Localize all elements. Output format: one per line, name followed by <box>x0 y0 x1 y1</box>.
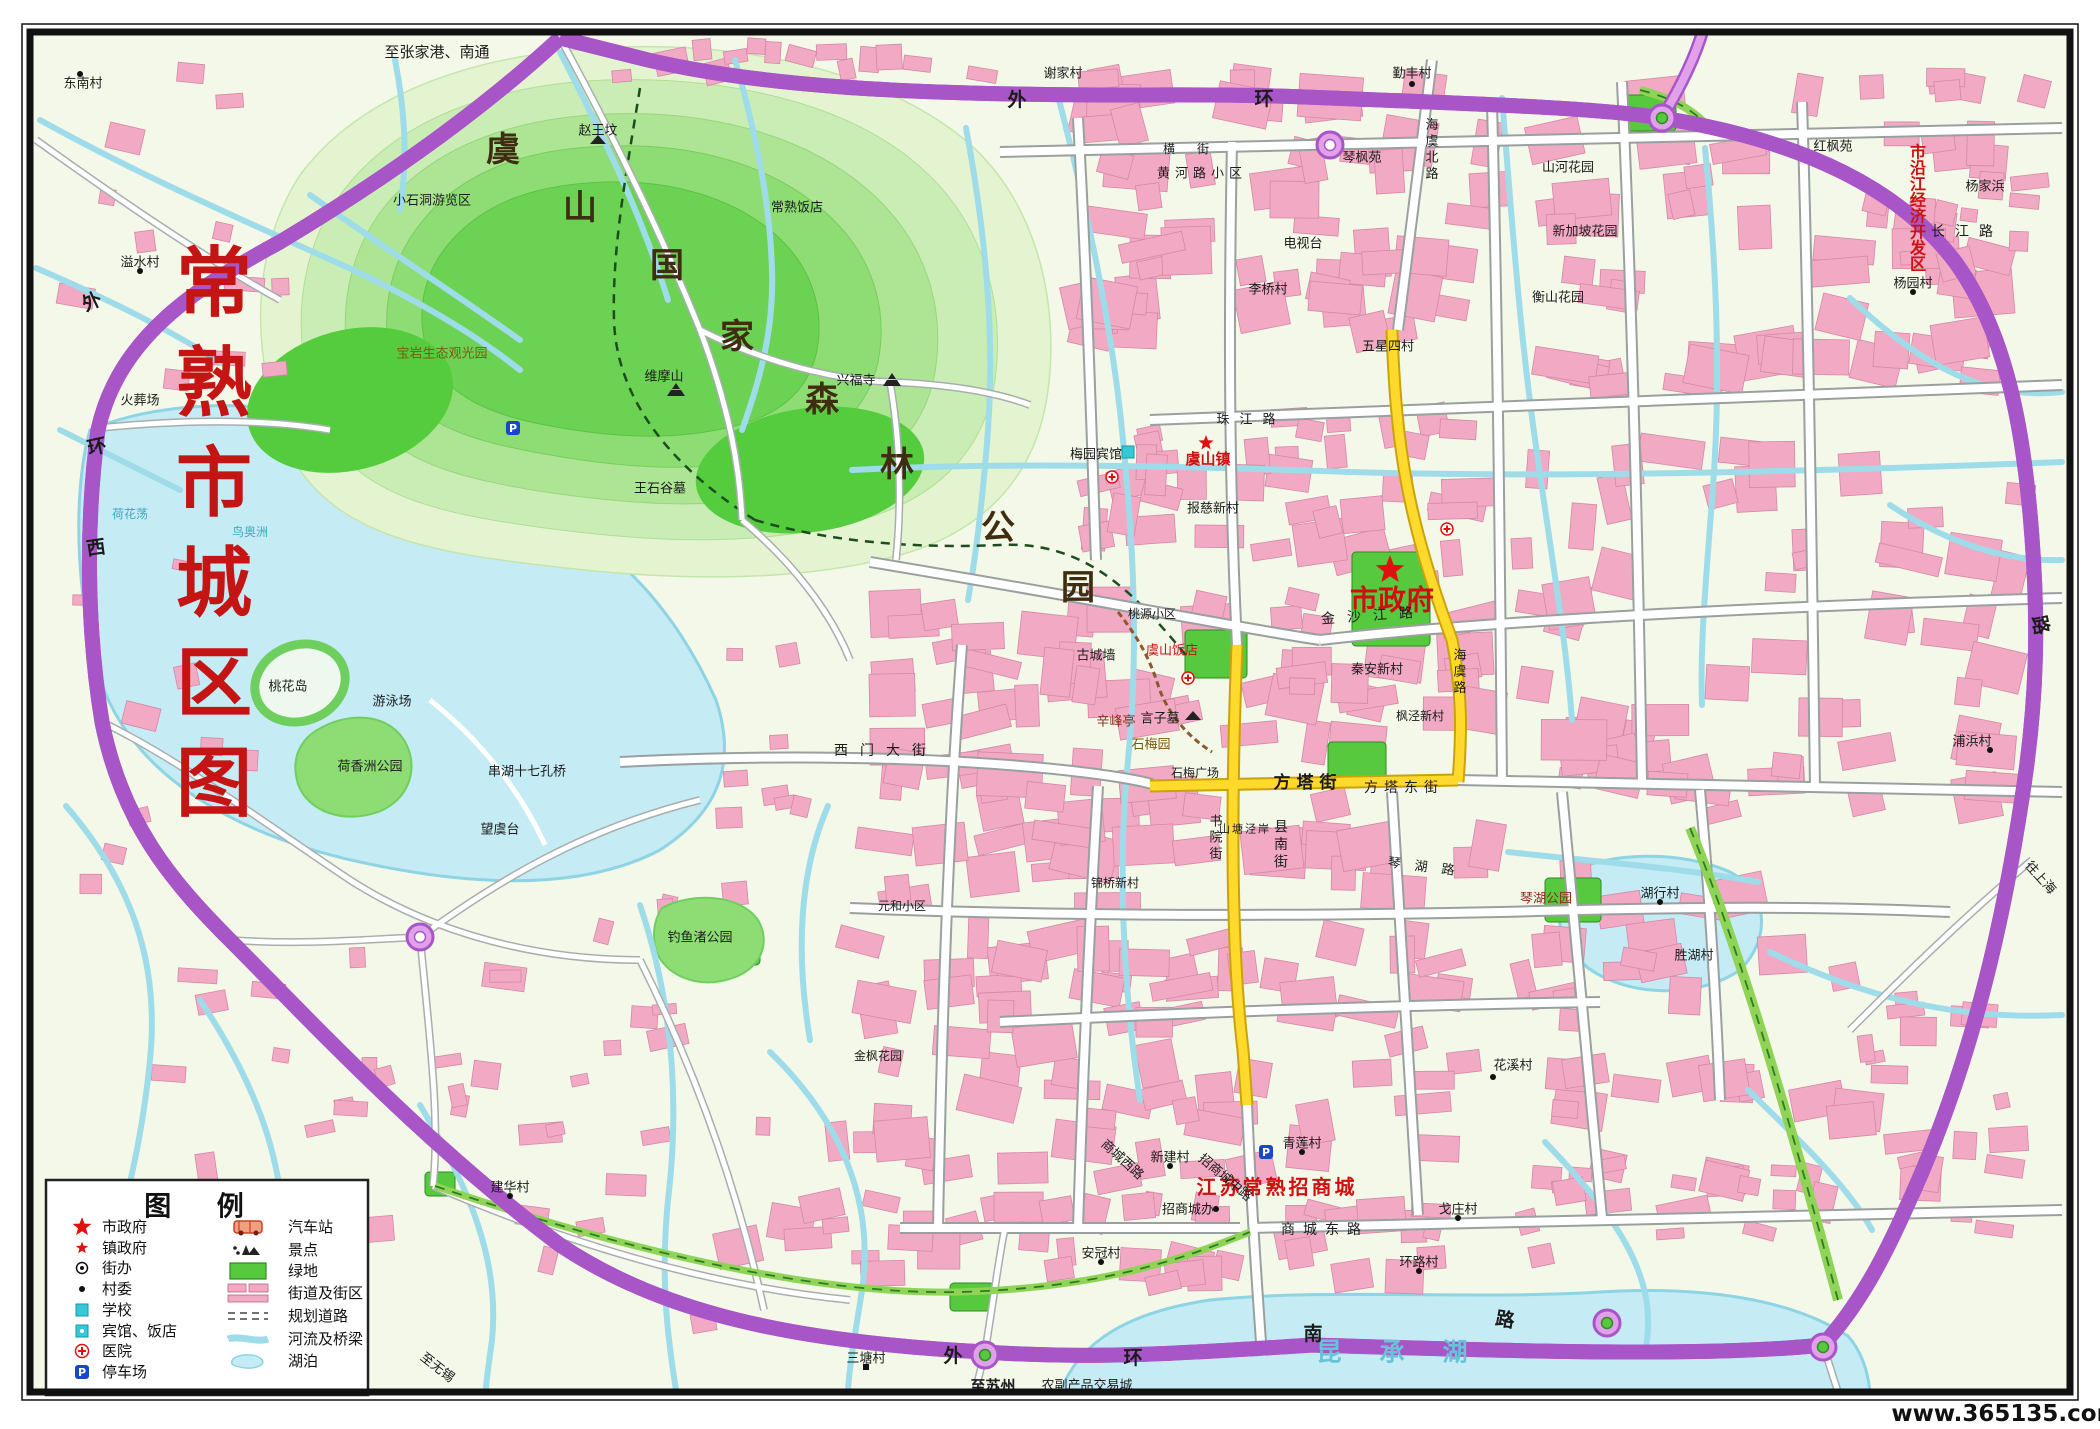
urban-block <box>1656 1228 1684 1240</box>
urban-block <box>1135 1039 1180 1089</box>
street-office-dot <box>80 1266 84 1270</box>
legend-label: 宾馆、饭店 <box>102 1322 177 1340</box>
map-label: 五星四村 <box>1362 340 1414 355</box>
map-label: 杨家浜 <box>1965 179 2004 195</box>
map-label: 枫泾新村 <box>1396 708 1444 723</box>
green-space-icon <box>230 1263 266 1279</box>
map-label: 湖行村 <box>1640 887 1679 902</box>
park-name-char: 森 <box>805 380 840 420</box>
urban-block <box>606 1174 647 1197</box>
roundabout-center <box>1657 113 1668 124</box>
urban-block <box>1145 454 1168 496</box>
urban-block <box>790 795 811 818</box>
lake-icon <box>232 1355 263 1368</box>
urban-block <box>1765 572 1796 592</box>
map-label: 言子墓 <box>1140 712 1179 727</box>
urban-block <box>1236 256 1266 286</box>
map-label: 秦安新村 <box>1351 662 1403 678</box>
urban-block <box>1025 781 1066 812</box>
urban-block <box>1993 1092 2010 1110</box>
bus-station-icon <box>234 1221 262 1233</box>
block-swatch <box>228 1284 246 1292</box>
bus-wheel <box>254 1231 259 1236</box>
legend-label: 河流及桥梁 <box>288 1330 363 1348</box>
urban-block <box>769 734 788 749</box>
park-name-char: 国 <box>650 246 684 286</box>
parking-letter: P <box>509 422 517 435</box>
urban-block <box>1954 677 1982 707</box>
legend-label: 规划道路 <box>288 1307 348 1325</box>
urban-block <box>869 673 915 716</box>
urban-block <box>2009 193 2040 210</box>
map-label: 琴枫苑 <box>1342 151 1381 166</box>
ring-road-label: 外 <box>943 1344 962 1367</box>
urban-block <box>1737 1176 1760 1196</box>
urban-block <box>1953 1131 1977 1159</box>
urban-block <box>1352 1059 1392 1087</box>
map-label: 勤丰村 <box>1392 67 1431 82</box>
roundabout-center <box>1602 1318 1613 1329</box>
map-label: 古城墙 <box>1076 649 1115 664</box>
map-label: 安冠村 <box>1081 1247 1120 1262</box>
urban-block <box>1989 1126 2029 1153</box>
map-label: 石梅园 <box>1131 738 1170 753</box>
urban-block <box>1511 538 1533 569</box>
green-space <box>950 1283 994 1311</box>
urban-block <box>1857 1034 1875 1062</box>
map-label: 南 <box>1274 837 1288 853</box>
legend-title: 图 例 <box>144 1192 261 1223</box>
urban-block <box>1289 678 1315 695</box>
park-name-char: 公 <box>981 508 1015 548</box>
urban-block <box>1331 1258 1374 1293</box>
map-label: 街 <box>1274 855 1288 871</box>
urban-block <box>1826 1102 1876 1139</box>
urban-block <box>1413 1071 1454 1089</box>
map-label: 虞 <box>1425 134 1438 149</box>
urban-block <box>1804 256 1869 288</box>
map-label: 谢家村 <box>1043 66 1082 82</box>
map-label: 招商城办 <box>1162 1203 1214 1218</box>
map-label: 元和小区 <box>878 899 926 913</box>
urban-block <box>151 1065 186 1083</box>
map-label: 商城东路 <box>1281 1222 1369 1238</box>
urban-block <box>903 55 932 72</box>
urban-block <box>966 852 1020 898</box>
school-icon <box>76 1304 88 1316</box>
urban-block <box>716 807 743 828</box>
map-label: 西门大街 <box>834 743 938 759</box>
map-label: 方塔街 <box>1274 772 1343 793</box>
park-name-char: 虞 <box>486 130 520 170</box>
map-label: 图 <box>176 739 252 828</box>
block-swatch <box>249 1284 268 1292</box>
legend-label: 汽车站 <box>288 1218 333 1236</box>
map-label: 珠江路 <box>1216 412 1285 428</box>
urban-block <box>1324 434 1347 469</box>
urban-block <box>216 93 244 109</box>
urban-block <box>1900 1017 1936 1046</box>
urban-block <box>873 1117 930 1162</box>
map-label: 昆承湖 <box>1316 1338 1505 1367</box>
map-label: 横街 <box>1163 142 1231 156</box>
map-label: 城 <box>176 539 252 628</box>
legend-label: 街道及街区 <box>288 1284 363 1302</box>
map-label: 黄河路小区 <box>1157 166 1247 182</box>
legend-label: 景点 <box>288 1241 318 1259</box>
village-dot-icon <box>1490 1074 1496 1080</box>
mountain-park-layer <box>230 47 1050 577</box>
urban-block <box>1561 256 1595 286</box>
park-name-char: 家 <box>720 317 754 357</box>
legend-label: 学校 <box>102 1301 132 1319</box>
urban-block <box>1569 503 1597 550</box>
urban-block <box>1015 684 1040 727</box>
urban-block <box>912 822 968 866</box>
urban-block <box>1428 502 1478 520</box>
map-label: 花溪村 <box>1493 1058 1532 1074</box>
map-label: 新建村 <box>1150 1150 1189 1166</box>
urban-block <box>1930 317 1990 366</box>
legend-label: 医院 <box>102 1342 132 1360</box>
map-label: 宝岩生态观光园 <box>396 347 487 362</box>
urban-block <box>1295 418 1324 442</box>
urban-block <box>1793 339 1850 375</box>
map-label: 常 <box>176 239 252 328</box>
map-label: 三塘村 <box>846 1351 885 1367</box>
urban-block <box>1934 80 1961 102</box>
map-label: 红枫苑 <box>1813 139 1852 155</box>
village-dot-icon <box>1409 81 1415 87</box>
urban-block <box>1135 183 1162 211</box>
parking-letter: P <box>1262 1146 1270 1159</box>
urban-block <box>1439 419 1476 440</box>
map-label: 琴湖公园 <box>1520 892 1572 907</box>
map-label: 新加坡花园 <box>1552 224 1617 240</box>
urban-block <box>1308 281 1363 315</box>
map-label: 电视台 <box>1283 237 1322 252</box>
map-label: 东南村 <box>63 76 102 92</box>
urban-block <box>1668 976 1701 1015</box>
map-label: 青莲村 <box>1282 1137 1321 1152</box>
parking-letter: P <box>78 1366 86 1379</box>
urban-block <box>776 642 800 667</box>
urban-block <box>1589 372 1633 398</box>
urban-block <box>272 1048 290 1064</box>
urban-block <box>1551 1100 1578 1119</box>
map-label: 市 <box>176 439 252 528</box>
legend-label: 村委 <box>102 1280 132 1298</box>
ring-road-label: 环 <box>1123 1347 1142 1369</box>
map-label: 熟 <box>176 339 252 428</box>
map-label: 路 <box>1453 680 1466 696</box>
map-label: 兴福寺 <box>836 374 875 389</box>
map-label: 小石洞游览区 <box>393 193 471 209</box>
map-label: 桃花岛 <box>268 679 307 695</box>
map-label: 辛峰亭 <box>1096 714 1135 730</box>
hotel-dot <box>80 1329 84 1333</box>
map-label: 溢水村 <box>120 256 159 271</box>
urban-block <box>80 874 102 894</box>
map-label: 赵王坟 <box>578 124 617 139</box>
urban-block <box>1340 496 1385 534</box>
map-label: 长江路 <box>1931 224 2003 240</box>
roundabout-center <box>980 1350 991 1361</box>
urban-block <box>262 361 287 377</box>
map-label: 海 <box>1453 648 1466 663</box>
urban-block <box>994 1192 1043 1222</box>
map-label: 王石谷墓 <box>634 482 686 497</box>
urban-block <box>997 1152 1048 1184</box>
river-icon <box>228 1338 268 1340</box>
urban-block <box>1394 1092 1451 1116</box>
map-label: 衡山花园 <box>1532 290 1584 306</box>
map-label: 杨园村 <box>1893 277 1932 292</box>
urban-block <box>1737 205 1771 250</box>
hotel-icon <box>1122 446 1134 458</box>
map-label: 金枫花园 <box>854 1048 902 1063</box>
urban-block <box>1771 1165 1796 1177</box>
map-label: 锦桥新村 <box>1091 875 1139 890</box>
ring-road-label: 外 <box>1007 88 1026 111</box>
map-label: 海 <box>1425 118 1438 133</box>
urban-block <box>1528 1243 1555 1268</box>
urban-block <box>1075 893 1141 910</box>
map-label: 路 <box>1425 166 1438 182</box>
urban-block <box>1040 647 1074 697</box>
map-label: 望虞台 <box>480 822 519 838</box>
urban-block <box>692 39 712 61</box>
urban-block <box>967 916 989 958</box>
urban-block <box>1751 639 1807 675</box>
map-label: 方塔东街 <box>1364 780 1444 796</box>
block-swatch <box>228 1295 268 1302</box>
park-name-char: 山 <box>563 188 597 228</box>
urban-block <box>756 1117 770 1135</box>
map-label: 区 <box>176 639 252 728</box>
urban-block <box>1838 451 1882 496</box>
urban-block <box>1773 1190 1796 1210</box>
map-label: 戈庄村 <box>1438 1202 1477 1218</box>
urban-block <box>1270 181 1319 218</box>
map-label: 北 <box>1425 151 1438 166</box>
map-label: 浦浜村 <box>1952 735 1991 750</box>
park-name-char: 林 <box>880 445 914 485</box>
roundabout-center <box>1325 140 1336 151</box>
urban-block <box>723 770 748 787</box>
map-label: 鸟奥洲 <box>232 524 268 539</box>
urban-block <box>747 38 766 55</box>
urban-block <box>178 968 218 984</box>
map-label: 山河花园 <box>1542 160 1594 176</box>
ring-road-label: 西 <box>85 536 107 560</box>
urban-block <box>471 1060 501 1089</box>
urban-block <box>765 41 782 63</box>
urban-block <box>1859 75 1884 100</box>
map-label: 虞 <box>1453 665 1466 680</box>
map-label: 报慈新村 <box>1187 501 1239 517</box>
urban-block <box>334 1100 368 1117</box>
legend-label: 街办 <box>102 1259 132 1277</box>
map-label: 建华村 <box>490 1181 529 1196</box>
village-dot-icon <box>79 1286 85 1292</box>
urban-block <box>349 947 365 968</box>
watermark: www.365135.com <box>1891 1401 2100 1427</box>
map-label: 胜湖村 <box>1674 949 1713 964</box>
bus-wheel <box>239 1231 244 1236</box>
map-label: 李桥村 <box>1248 283 1287 298</box>
map-label: 至张家港、南通 <box>384 43 489 61</box>
urban-block <box>822 1217 849 1234</box>
ring-road-label: 环 <box>1254 88 1273 110</box>
legend-label: 湖泊 <box>288 1352 318 1370</box>
urban-block <box>1798 698 1842 737</box>
roundabout-center <box>415 932 426 943</box>
map-label: 山塘泾岸 <box>1219 822 1271 836</box>
urban-block <box>1871 1065 1908 1084</box>
urban-block <box>1078 69 1119 90</box>
urban-block <box>1072 666 1100 705</box>
legend-box: 图 例 市政府镇政府街办村委学校宾馆、饭店医院P停车场汽车站景点绿地街道及街区规… <box>46 1180 368 1395</box>
urban-block <box>1517 666 1554 703</box>
legend-label: 停车场 <box>102 1363 147 1381</box>
map-label: 街 <box>1209 847 1222 862</box>
map-label: 钓鱼渚公园 <box>667 930 732 946</box>
map-label: 环路村 <box>1399 1255 1438 1271</box>
map-label: 虞山镇 <box>1185 450 1230 468</box>
urban-block <box>1705 665 1750 702</box>
map-label: 桃源小区 <box>1128 606 1176 621</box>
map-label: 县 <box>1274 820 1288 836</box>
urban-block <box>1044 1256 1074 1282</box>
map-label: 区 <box>1910 255 1926 274</box>
map-label: 游泳场 <box>372 695 411 710</box>
map-label: 串湖十七孔桥 <box>488 765 566 780</box>
legend-label: 市政府 <box>102 1218 147 1236</box>
urban-block <box>876 44 903 70</box>
map-label: 火葬场 <box>120 394 159 409</box>
urban-block <box>135 230 157 253</box>
park-name-char: 园 <box>1061 568 1095 608</box>
map-label: 荷香洲公园 <box>337 760 402 775</box>
map-label: 虞山饭店 <box>1146 644 1198 659</box>
urban-block <box>1083 1108 1116 1130</box>
urban-block <box>1285 1237 1314 1270</box>
map-label: 梅园宾馆 <box>1070 447 1122 463</box>
urban-block <box>1771 752 1801 779</box>
urban-block <box>1122 1192 1156 1220</box>
map-label: 维摩山 <box>644 369 683 385</box>
legend-label: 绿地 <box>288 1262 318 1280</box>
urban-block <box>1172 1097 1199 1125</box>
urban-block <box>490 970 521 982</box>
map-label: 荷花荡 <box>112 506 148 521</box>
urban-block <box>604 1040 622 1056</box>
map-label: 常熟饭店 <box>771 200 823 216</box>
urban-block <box>612 69 632 82</box>
urban-block <box>1749 441 1795 487</box>
map-page: PP 常熟市城区图市沿江经济开发区市政府虞山镇虞山饭店江苏常熟招商城辛峰亭琴湖公… <box>0 0 2100 1429</box>
ring-road-label: 南 <box>1303 1323 1322 1345</box>
city-map-canvas: PP 常熟市城区图市沿江经济开发区市政府虞山镇虞山饭店江苏常熟招商城辛峰亭琴湖公… <box>0 0 2100 1429</box>
urban-block <box>2009 231 2028 251</box>
urban-block <box>195 1152 218 1182</box>
urban-block <box>1532 932 1563 968</box>
urban-block <box>1541 719 1607 760</box>
map-label: 石梅广场 <box>1171 765 1219 780</box>
urban-block <box>1440 539 1463 576</box>
urban-block <box>177 62 205 83</box>
urban-block <box>727 648 743 660</box>
urban-block <box>1039 1196 1075 1226</box>
urban-block <box>1960 208 1978 223</box>
legend-label: 镇政府 <box>102 1239 147 1257</box>
urban-block <box>816 44 847 61</box>
roundabout-center <box>1818 1342 1829 1353</box>
